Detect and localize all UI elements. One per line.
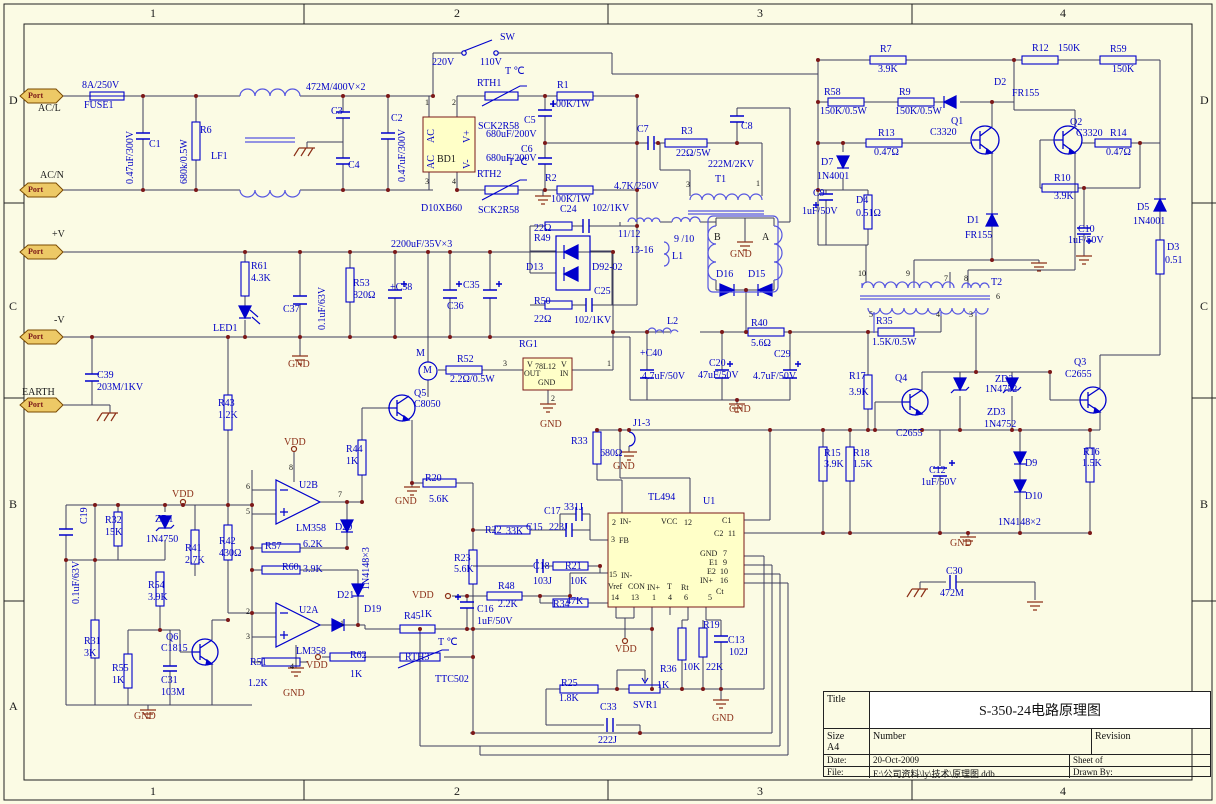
label-3: 3 bbox=[686, 181, 690, 189]
label-D10: D10 bbox=[1025, 492, 1042, 502]
label-IN+: IN+ bbox=[700, 577, 713, 585]
label-1.2K: 1.2K bbox=[218, 411, 238, 421]
label-R21: R21 bbox=[565, 562, 582, 572]
label-C33: C33 bbox=[600, 703, 617, 713]
label-C37: C37 bbox=[283, 305, 300, 315]
label-AC: AC bbox=[427, 129, 437, 143]
label-SVR1: SVR1 bbox=[633, 701, 657, 711]
label-VDD: VDD bbox=[412, 591, 434, 601]
label-C24: C24 bbox=[560, 205, 577, 215]
label-1N4148×3: 1N4148×3 bbox=[362, 547, 372, 590]
label-C5: C5 bbox=[524, 116, 536, 126]
label-0.47uF/300V: 0.47uF/300V bbox=[126, 131, 136, 184]
label-R2: R2 bbox=[545, 174, 557, 184]
label-C7: C7 bbox=[637, 125, 649, 135]
label-U2A: U2A bbox=[299, 606, 318, 616]
label-1N4148×2: 1N4148×2 bbox=[998, 518, 1041, 528]
label-10K: 10K bbox=[683, 663, 700, 673]
label-Q1: Q1 bbox=[951, 117, 963, 127]
label-C9: C9 bbox=[813, 189, 825, 199]
label-R51: R51 bbox=[250, 658, 267, 668]
label-R44: R44 bbox=[346, 445, 363, 455]
label-LED1: LED1 bbox=[213, 324, 237, 334]
label-GND: GND bbox=[730, 250, 752, 260]
label-680: 680Ω bbox=[600, 449, 622, 459]
label-15: 15 bbox=[609, 571, 617, 579]
label-C35: C35 bbox=[463, 281, 480, 291]
border-frame bbox=[4, 4, 1216, 800]
label-22/5W: 22Ω/5W bbox=[676, 149, 711, 159]
label-GND: GND bbox=[729, 405, 751, 415]
label-4: 4 bbox=[1060, 785, 1066, 797]
label-C10: C10 bbox=[1078, 225, 1095, 235]
label-1: 1 bbox=[150, 785, 156, 797]
label-RTH1: RTH1 bbox=[477, 79, 501, 89]
label-E1: E1 bbox=[709, 559, 718, 567]
label-TL494: TL494 bbox=[648, 493, 675, 503]
label-D15: D15 bbox=[748, 270, 765, 280]
label-R10: R10 bbox=[1054, 174, 1071, 184]
label-VDD: VDD bbox=[306, 661, 328, 671]
label-10: 10 bbox=[858, 270, 866, 278]
label-110V: 110V bbox=[480, 58, 502, 68]
label-220V: 220V bbox=[432, 58, 454, 68]
label-3: 3 bbox=[969, 311, 973, 319]
label-R22: R22 bbox=[485, 526, 502, 536]
label-Port: Port bbox=[28, 401, 43, 409]
label-0.47: 0.47Ω bbox=[1106, 148, 1131, 158]
label-47uF/50V: 47uF/50V bbox=[698, 371, 739, 381]
label-FR155: FR155 bbox=[1012, 89, 1039, 99]
label-1K: 1K bbox=[112, 676, 124, 686]
label-C3320: C3320 bbox=[1076, 129, 1103, 139]
label-D2: D2 bbox=[994, 78, 1006, 88]
label-EARTH: EARTH bbox=[22, 388, 55, 398]
label-T: T bbox=[667, 583, 672, 591]
label-C3320: C3320 bbox=[930, 128, 957, 138]
label-C20: C20 bbox=[709, 359, 726, 369]
label-R32: R32 bbox=[105, 516, 122, 526]
label-R54: R54 bbox=[148, 581, 165, 591]
label-D10XB60: D10XB60 bbox=[421, 204, 462, 214]
label-C13: C13 bbox=[728, 636, 745, 646]
label-1.5K/0.5W: 1.5K/0.5W bbox=[872, 338, 916, 348]
label-102J: 102J bbox=[729, 648, 748, 658]
label-Port: Port bbox=[28, 333, 43, 341]
label-11/12: 11/12 bbox=[618, 230, 640, 240]
label-3: 3 bbox=[757, 7, 763, 19]
label-B: B bbox=[714, 233, 721, 243]
label-V-: V- bbox=[463, 159, 473, 169]
label-8A/250V: 8A/250V bbox=[82, 81, 119, 91]
label-6: 6 bbox=[246, 483, 250, 491]
label-A: A bbox=[9, 700, 18, 712]
label-2.2/0.5W: 2.2Ω/0.5W bbox=[450, 375, 495, 385]
label-78L12: 78L12 bbox=[535, 363, 556, 371]
label-R16: R16 bbox=[1083, 448, 1100, 458]
label-+C38: +C38 bbox=[390, 283, 412, 293]
label-5.6K: 5.6K bbox=[429, 495, 449, 505]
label-8: 8 bbox=[964, 275, 968, 283]
label-150K: 150K bbox=[1058, 44, 1080, 54]
label-100K/1W: 100K/1W bbox=[551, 100, 590, 110]
label-LF1: LF1 bbox=[211, 152, 228, 162]
label-FR155: FR155 bbox=[965, 231, 992, 241]
label-1K: 1K bbox=[420, 610, 432, 620]
label-D3: D3 bbox=[1167, 243, 1179, 253]
label-T℃: T ℃ bbox=[505, 67, 525, 77]
file-value: E:\公司资料\ly\技术\原理图.ddb bbox=[870, 767, 1070, 778]
label-103J: 103J bbox=[533, 577, 552, 587]
label-2: 2 bbox=[551, 395, 555, 403]
label-C1: C1 bbox=[149, 140, 161, 150]
label-1N4752: 1N4752 bbox=[984, 420, 1016, 430]
label-11: 11 bbox=[728, 530, 736, 538]
label-1: 1 bbox=[340, 620, 344, 628]
label-10: 10 bbox=[720, 568, 728, 576]
number-cell: Number bbox=[870, 729, 1092, 754]
label-R52: R52 bbox=[457, 355, 474, 365]
label-R20: R20 bbox=[425, 474, 442, 484]
schematic-canvas bbox=[0, 0, 1216, 804]
label-0.51: 0.51 bbox=[1165, 256, 1183, 266]
label-2: 2 bbox=[246, 608, 250, 616]
label-D4: D4 bbox=[856, 196, 868, 206]
label-RG1: RG1 bbox=[519, 340, 538, 350]
label-1N4001: 1N4001 bbox=[817, 172, 849, 182]
label-GND: GND bbox=[540, 420, 562, 430]
label-1: 1 bbox=[756, 180, 760, 188]
file-label: File: bbox=[824, 767, 870, 778]
label-13-16: 13-16 bbox=[630, 246, 653, 256]
label-1N4750: 1N4750 bbox=[146, 535, 178, 545]
label-1N4752: 1N4752 bbox=[985, 385, 1017, 395]
label-1: 1 bbox=[652, 594, 656, 602]
label-R12: R12 bbox=[1032, 44, 1049, 54]
label-R1: R1 bbox=[557, 81, 569, 91]
label-A: A bbox=[762, 233, 769, 243]
label-1: 1 bbox=[150, 7, 156, 19]
label-150K/0.5W: 150K/0.5W bbox=[820, 107, 867, 117]
label-8: 8 bbox=[289, 464, 293, 472]
label-Q4: Q4 bbox=[895, 374, 907, 384]
label-3K: 3K bbox=[84, 649, 96, 659]
label-0.47uF/300V: 0.47uF/300V bbox=[398, 129, 408, 182]
label-3: 3 bbox=[425, 178, 429, 186]
drawn-by: Drawn By: bbox=[1070, 767, 1210, 778]
label-R42: R42 bbox=[219, 537, 236, 547]
label-C2655: C2655 bbox=[896, 429, 923, 439]
label-3: 3 bbox=[611, 536, 615, 544]
label-V+: V+ bbox=[463, 130, 473, 143]
label-GND: GND bbox=[700, 550, 717, 558]
label-1.5K: 1.5K bbox=[1082, 459, 1102, 469]
label-102/1KV: 102/1KV bbox=[574, 316, 611, 326]
label-2.7K: 2.7K bbox=[185, 556, 205, 566]
label-R36: R36 bbox=[660, 665, 677, 675]
label-223J: 223J bbox=[549, 523, 568, 533]
label-4.3K: 4.3K bbox=[251, 274, 271, 284]
label-C12: C12 bbox=[929, 466, 946, 476]
label-D: D bbox=[1200, 94, 1209, 106]
label-R18: R18 bbox=[853, 449, 870, 459]
label-5: 5 bbox=[246, 508, 250, 516]
label-2: 2 bbox=[454, 7, 460, 19]
label-IN+: IN+ bbox=[647, 584, 660, 592]
label-1uF/50V: 1uF/50V bbox=[477, 617, 513, 627]
label-6: 6 bbox=[684, 594, 688, 602]
label-IN-: IN- bbox=[620, 518, 631, 526]
label-4: 4 bbox=[1060, 7, 1066, 19]
label-R43: R43 bbox=[218, 399, 235, 409]
label-D21: D21 bbox=[337, 591, 354, 601]
label-VDD: VDD bbox=[284, 438, 306, 448]
label-D1: D1 bbox=[967, 216, 979, 226]
label-D13: D13 bbox=[526, 263, 543, 273]
label-Rt: Rt bbox=[681, 584, 689, 592]
label-TTC502: TTC502 bbox=[435, 675, 469, 685]
label-430: 430Ω bbox=[219, 549, 241, 559]
label-203M/1KV: 203M/1KV bbox=[97, 383, 143, 393]
label-5: 5 bbox=[869, 311, 873, 319]
label-1uF/50V: 1uF/50V bbox=[921, 478, 957, 488]
label-VCC: VCC bbox=[661, 518, 677, 526]
label-R14: R14 bbox=[1110, 129, 1127, 139]
label-13: 13 bbox=[631, 594, 639, 602]
label-22K: 22K bbox=[706, 663, 723, 673]
label-GND: GND bbox=[134, 712, 156, 722]
label-FUSE1: FUSE1 bbox=[84, 101, 113, 111]
label-GND: GND bbox=[288, 360, 310, 370]
label-D5: D5 bbox=[1137, 203, 1149, 213]
label-2200uF/35V×3: 2200uF/35V×3 bbox=[391, 240, 452, 250]
label-C: C bbox=[1200, 300, 1208, 312]
revision-cell: Revision bbox=[1092, 729, 1210, 754]
label-GND: GND bbox=[950, 539, 972, 549]
label-C: C bbox=[9, 300, 17, 312]
label-FB: FB bbox=[619, 537, 629, 545]
label-VDD: VDD bbox=[615, 645, 637, 655]
label-1: 1 bbox=[425, 99, 429, 107]
size-cell: SizeA4 bbox=[824, 729, 870, 754]
switch-sw bbox=[462, 40, 498, 55]
label-7: 7 bbox=[944, 275, 948, 283]
label-D19: D19 bbox=[364, 605, 381, 615]
label-1K: 1K bbox=[346, 457, 358, 467]
label-C8: C8 bbox=[741, 122, 753, 132]
label-R62: R62 bbox=[350, 651, 367, 661]
label-AC: AC bbox=[427, 155, 437, 169]
label-C18: C18 bbox=[533, 562, 550, 572]
label-3: 3 bbox=[246, 633, 250, 641]
label-U2B: U2B bbox=[299, 481, 318, 491]
label-0.47: 0.47Ω bbox=[874, 148, 899, 158]
label-Port: Port bbox=[28, 248, 43, 256]
label-Port: Port bbox=[28, 186, 43, 194]
label-Q2: Q2 bbox=[1070, 118, 1082, 128]
label-+V: +V bbox=[52, 230, 65, 240]
label-D7: D7 bbox=[821, 158, 833, 168]
label-1uF/50V: 1uF/50V bbox=[1068, 236, 1104, 246]
label-R33: R33 bbox=[571, 437, 588, 447]
label-L1: L1 bbox=[672, 252, 683, 262]
label-4.7K/250V: 4.7K/250V bbox=[614, 182, 659, 192]
label-C2: C2 bbox=[714, 530, 723, 538]
label-R35: R35 bbox=[876, 317, 893, 327]
label-R3: R3 bbox=[681, 127, 693, 137]
label-R13: R13 bbox=[878, 129, 895, 139]
label-4.7uF/50V: 4.7uF/50V bbox=[642, 372, 685, 382]
date-label: Date: bbox=[824, 755, 870, 766]
label--V: -V bbox=[54, 316, 65, 326]
label-47K: 47K bbox=[566, 597, 583, 607]
label-C1: C1 bbox=[722, 517, 731, 525]
label-2: 2 bbox=[452, 99, 456, 107]
label-222M/2KV: 222M/2KV bbox=[708, 160, 754, 170]
label-Ct: Ct bbox=[716, 588, 724, 596]
label-33K: 33K bbox=[506, 527, 523, 537]
label-R31: R31 bbox=[84, 637, 101, 647]
label-V: V bbox=[527, 361, 533, 369]
label-C4: C4 bbox=[348, 161, 360, 171]
label-ZD1: ZD1 bbox=[155, 515, 173, 525]
label-3: 3 bbox=[757, 785, 763, 797]
label-R23: R23 bbox=[454, 554, 471, 564]
label-12: 12 bbox=[684, 519, 692, 527]
label-R49: R49 bbox=[534, 234, 551, 244]
label-Q3: Q3 bbox=[1074, 358, 1086, 368]
label-4: 4 bbox=[452, 178, 456, 186]
label-LM358: LM358 bbox=[296, 524, 326, 534]
label-C2: C2 bbox=[391, 114, 403, 124]
label-R53: R53 bbox=[353, 279, 370, 289]
label-10K: 10K bbox=[570, 577, 587, 587]
label-R45: R45 bbox=[404, 612, 421, 622]
label-6: 6 bbox=[996, 293, 1000, 301]
label-R25: R25 bbox=[561, 679, 578, 689]
label-472M/400V×2: 472M/400V×2 bbox=[306, 83, 366, 93]
label-RTH2: RTH2 bbox=[477, 170, 501, 180]
label-14: 14 bbox=[611, 594, 619, 602]
label-D20: D20 bbox=[335, 523, 352, 533]
date-value: 20-Oct-2009 bbox=[870, 755, 1070, 766]
label-AC/L: AC/L bbox=[38, 104, 61, 114]
label-GND: GND bbox=[538, 379, 555, 387]
label-R58: R58 bbox=[824, 88, 841, 98]
label-3.9K: 3.9K bbox=[303, 565, 323, 575]
label-5.6K: 5.6K bbox=[454, 565, 474, 575]
label-C1815: C1815 bbox=[161, 644, 188, 654]
label-CON: CON bbox=[628, 583, 645, 591]
label-1N4001: 1N4001 bbox=[1133, 217, 1165, 227]
label-C17: C17 bbox=[544, 507, 561, 517]
label-Port: Port bbox=[28, 92, 43, 100]
label-+C40: +C40 bbox=[640, 349, 662, 359]
label-M: M bbox=[416, 349, 425, 359]
label-680k/0.5W: 680k/0.5W bbox=[180, 139, 190, 184]
size-value: A4 bbox=[827, 742, 839, 753]
label-9/10: 9 /10 bbox=[674, 235, 694, 245]
label-V: V bbox=[561, 361, 567, 369]
label-B: B bbox=[1200, 498, 1208, 510]
label-150K: 150K bbox=[1112, 65, 1134, 75]
label-D92-02: D92-02 bbox=[592, 263, 623, 273]
label-ZD3: ZD3 bbox=[987, 408, 1005, 418]
label-C19: C19 bbox=[80, 507, 90, 524]
label-D: D bbox=[9, 94, 18, 106]
label-R57: R57 bbox=[265, 542, 282, 552]
label-T℃: T ℃ bbox=[438, 638, 458, 648]
label-4: 4 bbox=[936, 311, 940, 319]
label-R15: R15 bbox=[824, 449, 841, 459]
label-D9: D9 bbox=[1025, 459, 1037, 469]
label-7: 7 bbox=[723, 550, 727, 558]
label-GND: GND bbox=[613, 462, 635, 472]
label-0.51: 0.51Ω bbox=[856, 209, 881, 219]
label-LM358: LM358 bbox=[296, 647, 326, 657]
label-T2: T2 bbox=[991, 278, 1002, 288]
label-Q6: Q6 bbox=[166, 633, 178, 643]
label-AC/N: AC/N bbox=[40, 171, 64, 181]
label-BD1: BD1 bbox=[437, 155, 456, 165]
label-J1-3: J1-3 bbox=[633, 419, 650, 429]
label-1uF/50V: 1uF/50V bbox=[802, 207, 838, 217]
label-3.9K: 3.9K bbox=[878, 65, 898, 75]
label-R9: R9 bbox=[899, 88, 911, 98]
label-M: M bbox=[423, 366, 432, 376]
label-C25: C25 bbox=[594, 287, 611, 297]
label-B: B bbox=[9, 498, 17, 510]
label-3: 3 bbox=[503, 360, 507, 368]
label-1.8K: 1.8K bbox=[559, 694, 579, 704]
label-820: 820Ω bbox=[353, 291, 375, 301]
label-2: 2 bbox=[454, 785, 460, 797]
label-OUT: OUT bbox=[524, 370, 540, 378]
label-D16: D16 bbox=[716, 270, 733, 280]
label-R55: R55 bbox=[112, 664, 129, 674]
label-331J: 331J bbox=[564, 503, 583, 513]
label-0.1uF/63V: 0.1uF/63V bbox=[318, 287, 328, 330]
label-L2: L2 bbox=[667, 317, 678, 327]
label-0.1uF/63V: 0.1uF/63V bbox=[72, 561, 82, 604]
label-C29: C29 bbox=[774, 350, 791, 360]
label-IN: IN bbox=[560, 370, 568, 378]
label-9: 9 bbox=[723, 559, 727, 567]
label-R48: R48 bbox=[498, 582, 515, 592]
label-C36: C36 bbox=[447, 302, 464, 312]
label-102/1KV: 102/1KV bbox=[592, 204, 629, 214]
label-SCK2R58: SCK2R58 bbox=[478, 206, 519, 216]
label-R19: R19 bbox=[703, 621, 720, 631]
label-1.2K: 1.2K bbox=[248, 679, 268, 689]
label-2.2K: 2.2K bbox=[498, 600, 518, 610]
label-RTH3: RTH3 bbox=[405, 653, 429, 663]
label-C3: C3 bbox=[331, 107, 343, 117]
label-R60: R60 bbox=[282, 563, 299, 573]
label-C8050: C8050 bbox=[414, 400, 441, 410]
label-5: 5 bbox=[708, 594, 712, 602]
label-C30: C30 bbox=[946, 567, 963, 577]
label-GND: GND bbox=[283, 689, 305, 699]
schematic-sheet: 12341234DCBADCBAPortPortPortPortPortAC/L… bbox=[0, 0, 1216, 804]
label-C31: C31 bbox=[161, 676, 178, 686]
label-R6: R6 bbox=[200, 126, 212, 136]
label-15K: 15K bbox=[105, 528, 122, 538]
label-U1: U1 bbox=[703, 497, 715, 507]
label-R17: R17 bbox=[849, 372, 866, 382]
label-680uF/200V: 680uF/200V bbox=[486, 130, 537, 140]
label-R40: R40 bbox=[751, 319, 768, 329]
